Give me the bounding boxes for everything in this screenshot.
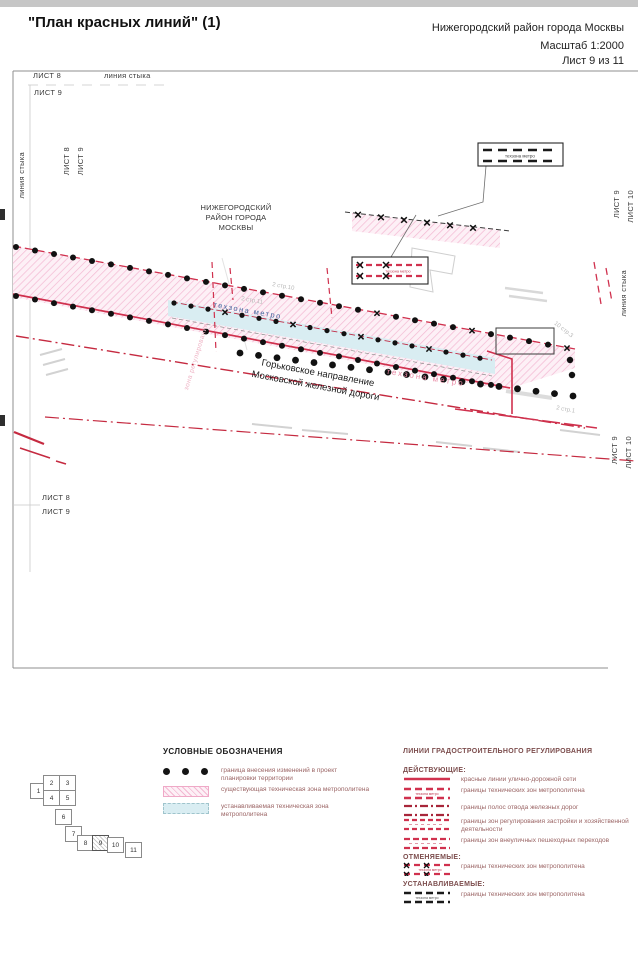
legend-line-pedestrian: границы зон внеуличных пешеходных перехо… [403, 836, 633, 850]
legend-line-label: границы зон регулирования застройки и хо… [461, 818, 633, 834]
edge-label-right-sheet9-top: ЛИСТ 9 [612, 190, 621, 218]
cyan-zone-symbol [163, 803, 209, 814]
legend-lines-title: ЛИНИИ ГРАДОСТРОИТЕЛЬНОГО РЕГУЛИРОВАНИЯ [403, 748, 638, 755]
legend-item-change-boundary: граница внесения изменений в проект план… [163, 767, 371, 783]
section-installed: УСТАНАВЛИВАЕМЫЕ: [403, 881, 485, 888]
legend-line-installed-metro: техзона метро границы технических зон ме… [403, 890, 633, 904]
legend-symbols-title: УСЛОВНЫЕ ОБОЗНАЧЕНИЯ [163, 747, 403, 756]
legend-item-label: устанавливаемая техническая зона метропо… [221, 803, 371, 819]
legend-line-label: границы зон внеуличных пешеходных перехо… [461, 837, 633, 845]
edge-label-bottom-sheet8: ЛИСТ 8 [42, 493, 70, 502]
legend-line-label: границы технических зон метрополитена [461, 787, 633, 795]
legend-regulation-lines: ЛИНИИ ГРАДОСТРОИТЕЛЬНОГО РЕГУЛИРОВАНИЯ Д… [403, 748, 638, 755]
sheet-index-box-4: 4 [43, 790, 60, 806]
legend-item-label: существующая техническая зона метрополит… [221, 786, 371, 794]
red-dashed-pair-symbol: техзона метро [403, 786, 451, 800]
legend-symbols: УСЛОВНЫЕ ОБОЗНАЧЕНИЯ граница внесения из… [163, 747, 403, 756]
edge-label-right-sheet9-bottom: ЛИСТ 9 [610, 436, 619, 464]
district-label: НИЖЕГОРОДСКИЙ РАЙОН ГОРОДА МОСКВЫ [191, 203, 281, 233]
black-dots-symbol [163, 768, 209, 775]
section-acting: ДЕЙСТВУЮЩИЕ: [403, 767, 466, 774]
edge-label-left-sheet8: ЛИСТ 8 [62, 147, 71, 175]
legend-line-label: красные линии улично-дорожной сети [461, 776, 633, 784]
edge-label-top-seam: линия стыка [104, 71, 151, 80]
cancelled-x-dashed-symbol: техзона метро [403, 862, 451, 876]
sheet-index-box-6: 6 [55, 809, 72, 825]
callout-installed-techzone: техзона метро [438, 143, 563, 216]
legend-line-cancelled-metro: техзона метро границы технических зон ме… [403, 862, 633, 876]
railway-dashdot-symbol [403, 803, 451, 817]
edge-label-top-sheet9: ЛИСТ 9 [34, 88, 62, 97]
plan-document-page: "План красных линий" (1) Нижегородский р… [0, 0, 638, 970]
legend-line-label: границы полос отвода железных дорог [461, 804, 633, 812]
sheet-joint-lines [13, 85, 170, 572]
sheet-index-box-10: 10 [107, 837, 124, 853]
map-canvas: техзона метро техзона метро [0, 0, 638, 700]
legend-line-regulation-zones: границы зон регулирования застройки и хо… [403, 817, 633, 834]
edge-label-left-seam: линия стыка [17, 152, 26, 199]
edge-label-right-sheet10-top: ЛИСТ 10 [626, 190, 635, 223]
edge-label-top-sheet8: ЛИСТ 8 [33, 71, 61, 80]
pink-hatch-symbol [163, 786, 209, 797]
callout-installed-label: техзона метро [505, 154, 535, 159]
edge-label-right-sheet10-bottom: ЛИСТ 10 [624, 436, 633, 469]
legend-item-installed-zone: устанавливаемая техническая зона метропо… [163, 803, 371, 819]
legend-item-label: граница внесения изменений в проект план… [221, 767, 371, 783]
regulation-dashed-symbol [403, 817, 451, 831]
pedestrian-dashed-symbol [403, 836, 451, 850]
micro-label: техзона метро [418, 868, 441, 872]
legend-line-metro-zones: техзона метро границы технических зон ме… [403, 786, 633, 800]
legend-item-existing-zone: существующая техническая зона метрополит… [163, 786, 371, 797]
sheet-index-diagram: 1 2 3 4 5 6 7 8 9 10 11 [28, 772, 148, 864]
edge-label-bottom-sheet9: ЛИСТ 9 [42, 507, 70, 516]
callout-cancelled-label: техзона метро [385, 270, 410, 274]
legend-line-railway-row: границы полос отвода железных дорог [403, 803, 633, 817]
upper-metro-techzone-band [352, 213, 500, 248]
sheet-index-box-3: 3 [59, 775, 76, 791]
edge-label-right-seam: линия стыка [619, 270, 628, 317]
legend-line-label: границы технических зон метрополитена [461, 891, 633, 899]
sheet-index-box-11: 11 [125, 842, 142, 858]
micro-label: техзона метро [415, 896, 438, 900]
micro-label: техзона метро [415, 792, 438, 796]
installed-black-dashed-symbol: техзона метро [403, 890, 451, 904]
edge-label-left-sheet9: ЛИСТ 9 [76, 147, 85, 175]
legend-line-label: границы технических зон метрополитена [461, 863, 633, 871]
section-cancelled: ОТМЕНЯЕМЫЕ: [403, 854, 461, 861]
sheet-index-box-5: 5 [59, 790, 76, 806]
sheet-index-box-2: 2 [43, 775, 60, 791]
